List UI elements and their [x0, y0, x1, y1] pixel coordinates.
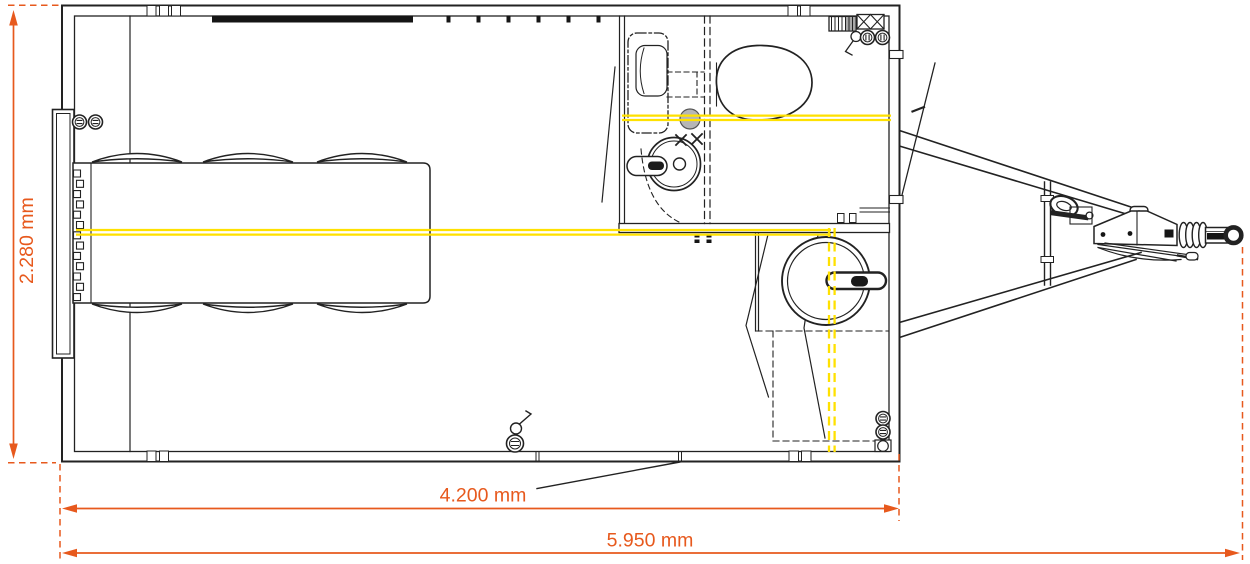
power-socket [876, 31, 890, 45]
damper-block [1165, 230, 1174, 238]
overrun-coupling-body [1094, 211, 1177, 246]
arrowhead-right [1225, 549, 1240, 558]
trailer-floor-plan: 2.280 mm 4.200 mm 5.950 mm [0, 0, 1250, 564]
arrowhead-down [9, 444, 18, 460]
drain [674, 158, 686, 170]
brake-rod-tip [1186, 253, 1198, 261]
power-socket [861, 31, 875, 45]
bolt [1101, 232, 1106, 237]
dim-total-length-label: 5.950 mm [607, 530, 694, 552]
power-socket [876, 412, 890, 426]
arrowhead-up [9, 10, 18, 26]
fuse-box [857, 15, 884, 30]
bolt [1128, 231, 1133, 236]
toilet [716, 45, 812, 120]
entrance-door-leaf [537, 462, 680, 489]
hub [851, 276, 868, 287]
drawbar-upper-tube [901, 131, 1143, 218]
rear-wall-hinge [890, 196, 904, 204]
arrowhead-right [884, 504, 899, 513]
heater-fins [832, 17, 853, 31]
window-band [212, 16, 413, 23]
support-crank [902, 63, 935, 195]
power-socket [73, 115, 87, 129]
drawbar-lower-tube [901, 253, 1141, 338]
faucet-grip [648, 162, 664, 171]
hitch-ball-socket [1226, 227, 1242, 243]
power-socket [89, 115, 103, 129]
arrowhead-left [62, 504, 77, 513]
post-clamp [1041, 257, 1054, 263]
dim-body-length-label: 4.200 mm [440, 485, 527, 507]
seating-area [73, 154, 430, 313]
heater-shade [846, 17, 856, 31]
conference-table [73, 163, 430, 303]
power-socket [876, 425, 890, 439]
rear-wall-hinge [890, 51, 904, 59]
drawbar [901, 63, 1241, 337]
arrowhead-left [62, 549, 77, 558]
light-switch [851, 32, 861, 42]
entrance-door [53, 110, 75, 359]
floor-plan-drawing: 2.280 mm 4.200 mm 5.950 mm [0, 0, 1250, 564]
support-crank-grip [913, 107, 925, 112]
dim-height-label: 2.280 mm [16, 197, 38, 284]
